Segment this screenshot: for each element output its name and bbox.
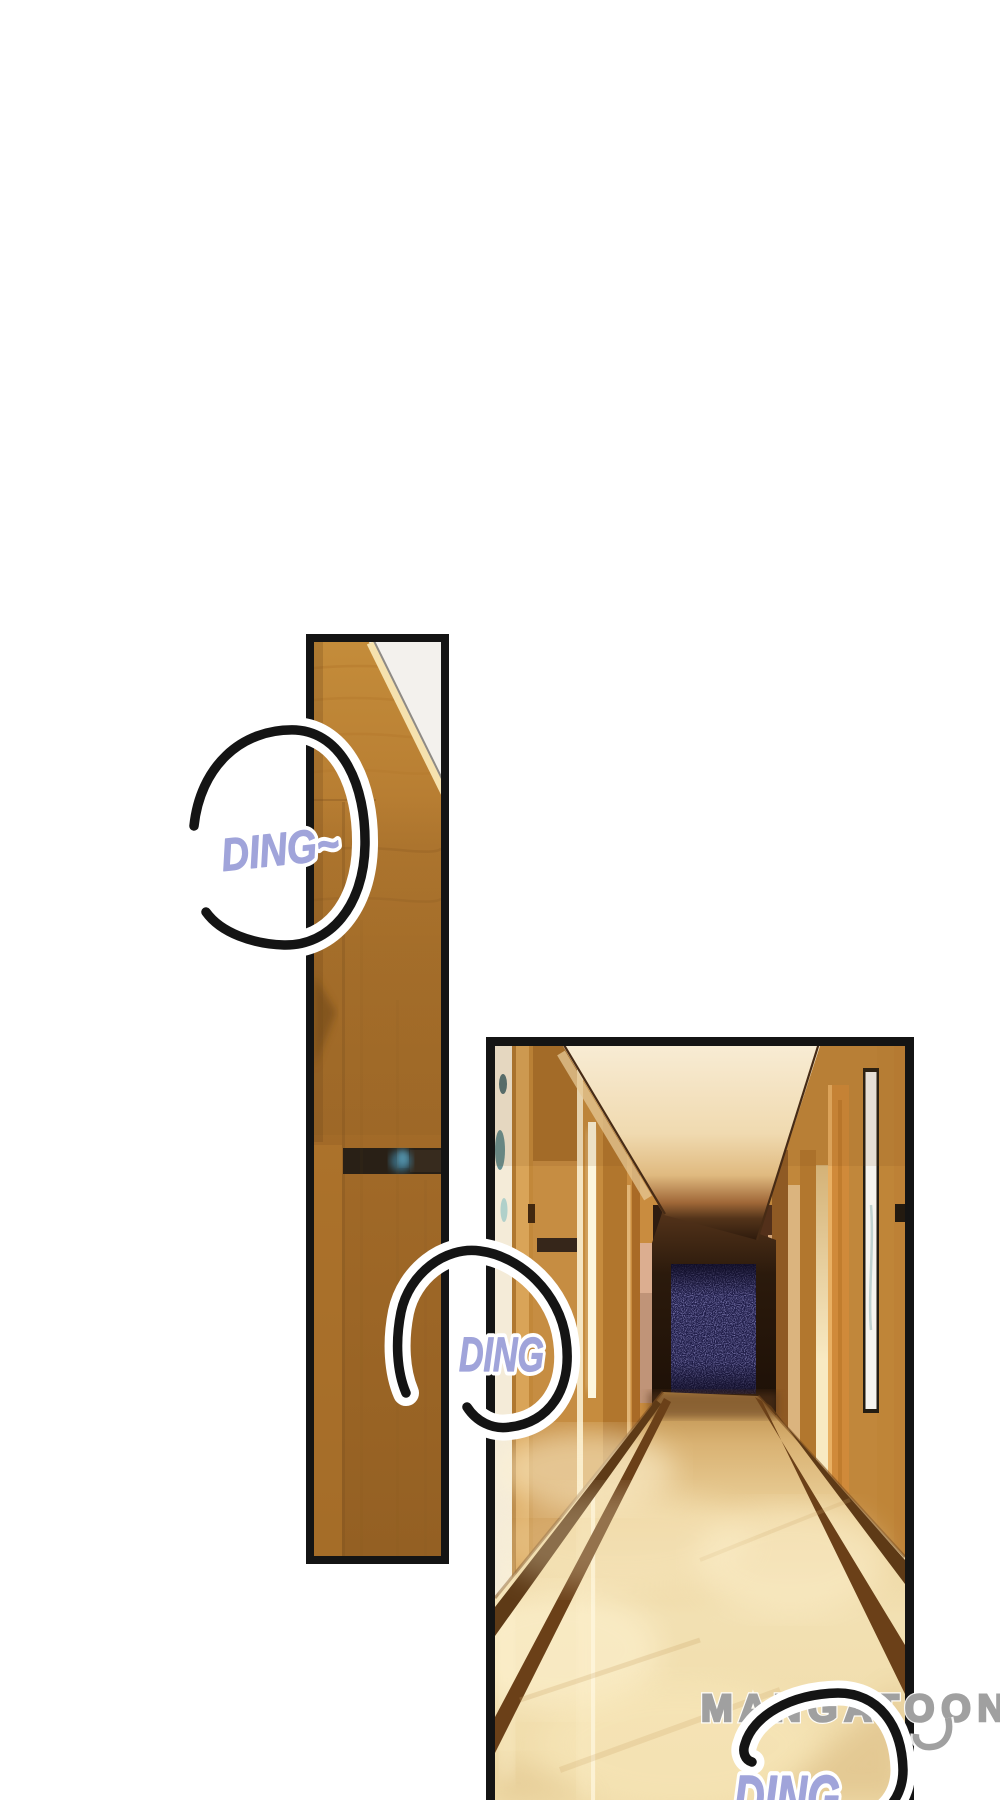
svg-text:DING: DING bbox=[734, 1764, 840, 1800]
svg-text:DING: DING bbox=[459, 1329, 544, 1382]
